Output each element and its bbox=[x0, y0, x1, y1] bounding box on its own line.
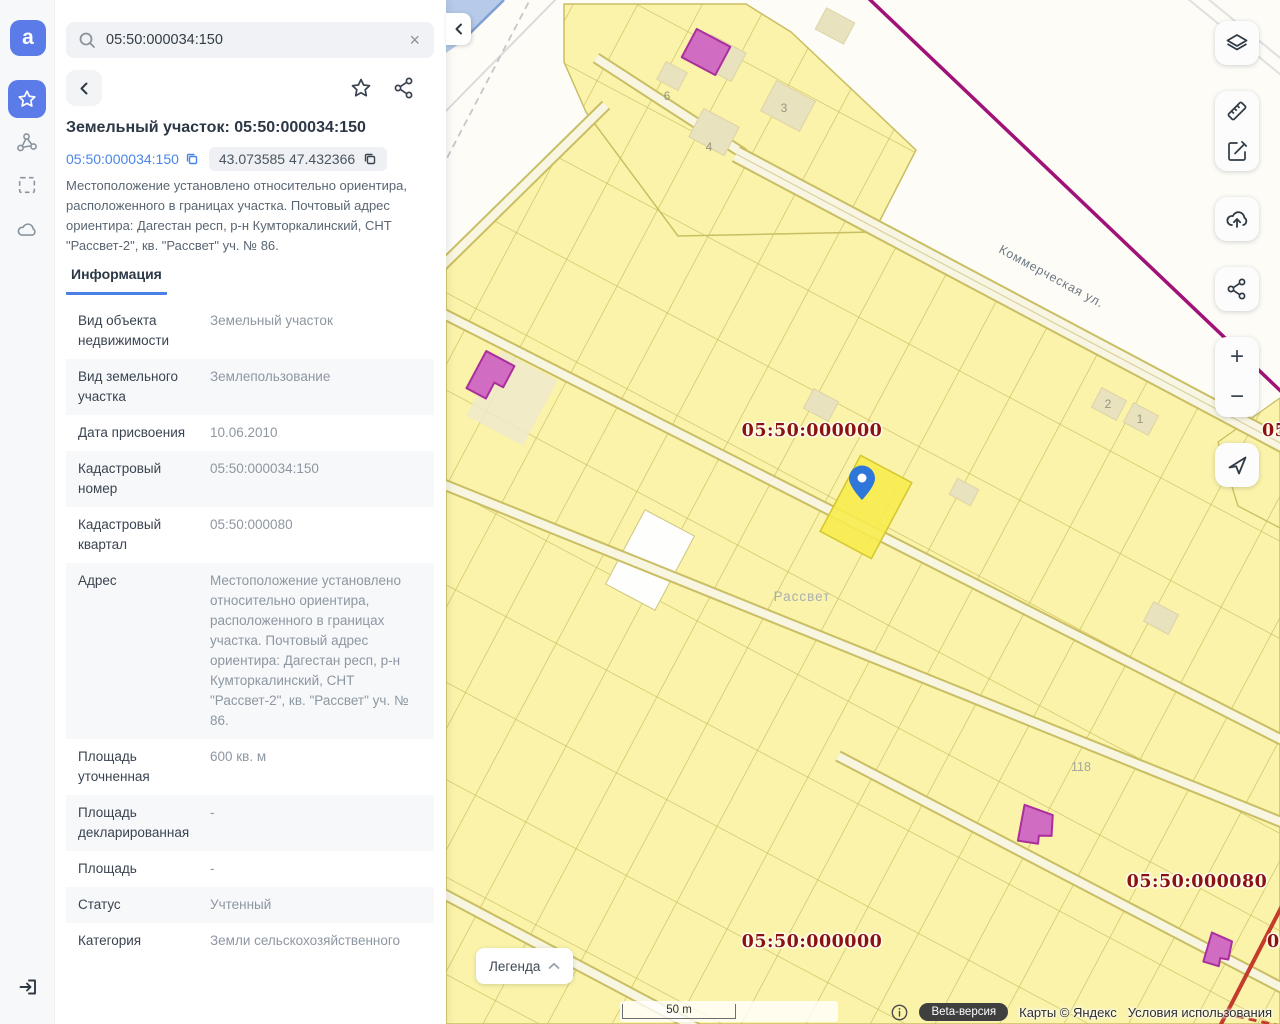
table-row: Вид объекта недвижимостиЗемельный участо… bbox=[66, 303, 434, 359]
table-row: Кадастровый квартал05:50:000080 bbox=[66, 507, 434, 563]
sidebar-item-select-area[interactable] bbox=[8, 166, 46, 204]
map-attribution: Beta-версия Карты © Яндекс Условия испол… bbox=[891, 1003, 1272, 1021]
table-row: СтатусУчтенный bbox=[66, 887, 434, 923]
scale-measure: 50 m bbox=[622, 1004, 736, 1019]
svg-text:3: 3 bbox=[781, 101, 788, 115]
edit-icon bbox=[1225, 139, 1249, 163]
info-icon[interactable] bbox=[891, 1004, 908, 1021]
svg-text:6: 6 bbox=[664, 89, 671, 103]
search-input[interactable] bbox=[106, 32, 407, 48]
sidebar-item-favorites[interactable] bbox=[8, 80, 46, 118]
map-svg: 6 3 4 2 1 118 Коммерческая ул. Рассвет 0… bbox=[446, 0, 1280, 1024]
svg-text:05:5: 05:5 bbox=[1262, 421, 1280, 441]
sidebar-item-geometry[interactable] bbox=[8, 124, 46, 162]
table-row: Площадь декларированная- bbox=[66, 795, 434, 851]
svg-text:05:: 05: bbox=[1267, 932, 1280, 952]
layers-button[interactable] bbox=[1215, 21, 1259, 65]
locate-arrow-icon bbox=[1225, 453, 1249, 477]
table-row: Кадастровый номер05:50:000034:150 bbox=[66, 451, 434, 507]
cloud-upload-icon bbox=[1224, 206, 1250, 232]
yandex-copyright[interactable]: Карты © Яндекс bbox=[1019, 1005, 1117, 1020]
share-icon bbox=[392, 76, 416, 100]
zoom-in-icon: + bbox=[1230, 345, 1244, 369]
edit-button[interactable] bbox=[1215, 131, 1259, 171]
search-bar[interactable]: × bbox=[66, 22, 434, 58]
panel-toolbar bbox=[66, 70, 434, 106]
exit-icon bbox=[16, 975, 40, 999]
favorite-star-icon bbox=[16, 88, 38, 110]
copy-icon[interactable] bbox=[363, 152, 377, 166]
copy-icon[interactable] bbox=[185, 152, 199, 166]
left-icon-rail: a bbox=[0, 0, 55, 1024]
collapse-chevron-icon bbox=[452, 22, 466, 36]
cadastral-number-chip[interactable]: 05:50:000034:150 bbox=[66, 151, 199, 167]
table-row: Площадь уточненная600 кв. м bbox=[66, 739, 434, 795]
svg-text:05:50:000000: 05:50:000000 bbox=[742, 421, 883, 441]
zoom-out-icon: − bbox=[1230, 385, 1244, 409]
legend-label: Легенда bbox=[489, 959, 540, 974]
beta-badge: Beta-версия bbox=[919, 1003, 1008, 1021]
locate-button[interactable] bbox=[1215, 443, 1259, 487]
tab-information[interactable]: Информация bbox=[66, 266, 167, 295]
back-chevron-icon bbox=[77, 81, 92, 96]
svg-text:05:50:000080: 05:50:000080 bbox=[1127, 872, 1268, 892]
polygon-nodes-icon bbox=[15, 131, 39, 155]
settlement-label: Рассвет bbox=[774, 589, 831, 604]
cloud-icon bbox=[15, 218, 39, 242]
svg-text:05:50:000000: 05:50:000000 bbox=[742, 932, 883, 952]
svg-text:4: 4 bbox=[706, 140, 713, 154]
table-row: Вид земельного участкаЗемлепользование bbox=[66, 359, 434, 415]
map-share-icon bbox=[1225, 277, 1249, 301]
legend-chevron-up-icon bbox=[548, 962, 560, 970]
search-icon bbox=[78, 31, 96, 49]
measure-edit-group bbox=[1215, 91, 1259, 171]
exit-button[interactable] bbox=[13, 972, 43, 1002]
map-share-button[interactable] bbox=[1215, 267, 1259, 311]
object-description: Местоположение установлено относительно … bbox=[66, 176, 434, 256]
upload-button[interactable] bbox=[1215, 197, 1259, 241]
app-logo[interactable]: a bbox=[10, 20, 46, 56]
table-row: Дата присвоения10.06.2010 bbox=[66, 415, 434, 451]
detail-panel: × Земельный участок: 05:50:000034:150 05… bbox=[55, 0, 446, 1024]
share-button[interactable] bbox=[392, 76, 416, 100]
table-row: Площадь- bbox=[66, 851, 434, 887]
panel-collapse-button[interactable] bbox=[446, 13, 471, 45]
app-window: 6 3 4 2 1 118 Коммерческая ул. Рассвет 0… bbox=[0, 0, 1280, 1024]
select-area-icon bbox=[16, 174, 38, 196]
svg-text:1: 1 bbox=[1137, 412, 1144, 426]
map-canvas[interactable]: 6 3 4 2 1 118 Коммерческая ул. Рассвет 0… bbox=[446, 0, 1280, 1024]
terms-link[interactable]: Условия использования bbox=[1128, 1005, 1272, 1020]
scale-label: 50 m bbox=[666, 1004, 692, 1016]
zoom-out-button[interactable]: − bbox=[1215, 377, 1259, 417]
legend-button[interactable]: Легенда bbox=[476, 948, 573, 984]
star-icon bbox=[349, 76, 373, 100]
page-title: Земельный участок: 05:50:000034:150 bbox=[66, 119, 436, 137]
table-row: АдресМестоположение установлено относите… bbox=[66, 563, 434, 739]
layers-icon bbox=[1224, 30, 1250, 56]
svg-text:118: 118 bbox=[1071, 760, 1091, 774]
table-row: КатегорияЗемли сельскохозяйственного bbox=[66, 923, 434, 959]
coordinates-chip[interactable]: 43.073585 47.432366 bbox=[209, 147, 387, 171]
ruler-button[interactable] bbox=[1215, 91, 1259, 131]
back-button[interactable] bbox=[66, 70, 102, 106]
favorite-button[interactable] bbox=[349, 76, 373, 100]
scale-bar: 50 m bbox=[620, 1001, 838, 1022]
chips-row: 05:50:000034:150 43.073585 47.432366 bbox=[66, 147, 387, 171]
sidebar-item-cloud[interactable] bbox=[8, 211, 46, 249]
info-table: Вид объекта недвижимостиЗемельный участо… bbox=[66, 303, 434, 959]
zoom-group: + − bbox=[1215, 337, 1259, 417]
svg-text:2: 2 bbox=[1105, 397, 1112, 411]
zoom-in-button[interactable]: + bbox=[1215, 337, 1259, 377]
ruler-icon bbox=[1225, 99, 1249, 123]
clear-search-icon[interactable]: × bbox=[407, 31, 422, 49]
